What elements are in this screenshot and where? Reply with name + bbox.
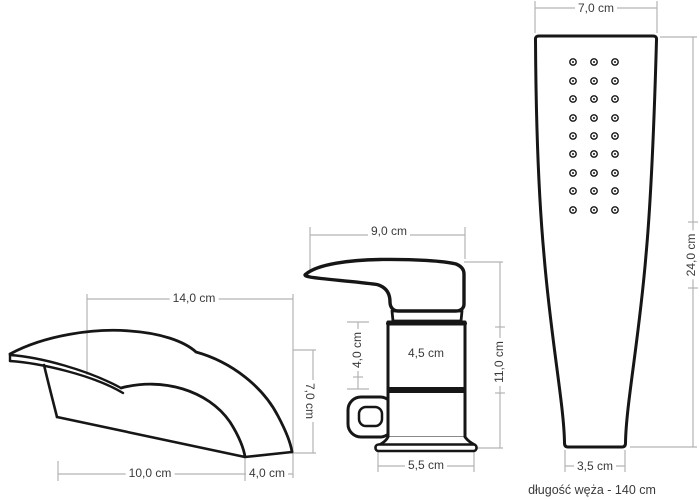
fixtures-line-art (0, 0, 700, 500)
spout-line-art (10, 330, 292, 457)
dim-label-mixer-handle-width: 9,0 cm (368, 224, 410, 238)
dim-label-mixer-upper-height: 4,0 cm (350, 329, 364, 371)
mixer-base-plate (376, 445, 477, 452)
shower-line-art (535, 36, 656, 447)
dim-label-mixer-total-height: 11,0 cm (492, 338, 506, 386)
mixer-lever-handle (305, 259, 464, 311)
dim-label-shower-head-width: 7,0 cm (575, 1, 617, 15)
dim-label-shower-total-height: 24,0 cm (684, 231, 698, 280)
mixer-body-divider (387, 387, 466, 393)
dim-label-shower-bottom-width: 3,5 cm (574, 459, 616, 473)
dim-label-spout-top-width: 14,0 cm (170, 291, 219, 305)
hose-length-note: długość węża - 140 cm (525, 483, 659, 498)
dim-label-mixer-body-width: 4,5 cm (405, 346, 447, 360)
dim-label-mixer-base-width: 5,5 cm (405, 458, 447, 472)
dim-label-spout-front-height: 7,0 cm (303, 380, 317, 422)
mixer-body (388, 322, 465, 438)
diagram-canvas: 14,0 cm 7,0 cm 10,0 cm 4,0 cm 9,0 cm 4,0… (0, 0, 700, 500)
dim-label-spout-bottom-length: 10,0 cm (126, 466, 175, 480)
mixer-line-art (305, 259, 476, 451)
dim-label-spout-bottom-depth: 4,0 cm (246, 466, 288, 480)
